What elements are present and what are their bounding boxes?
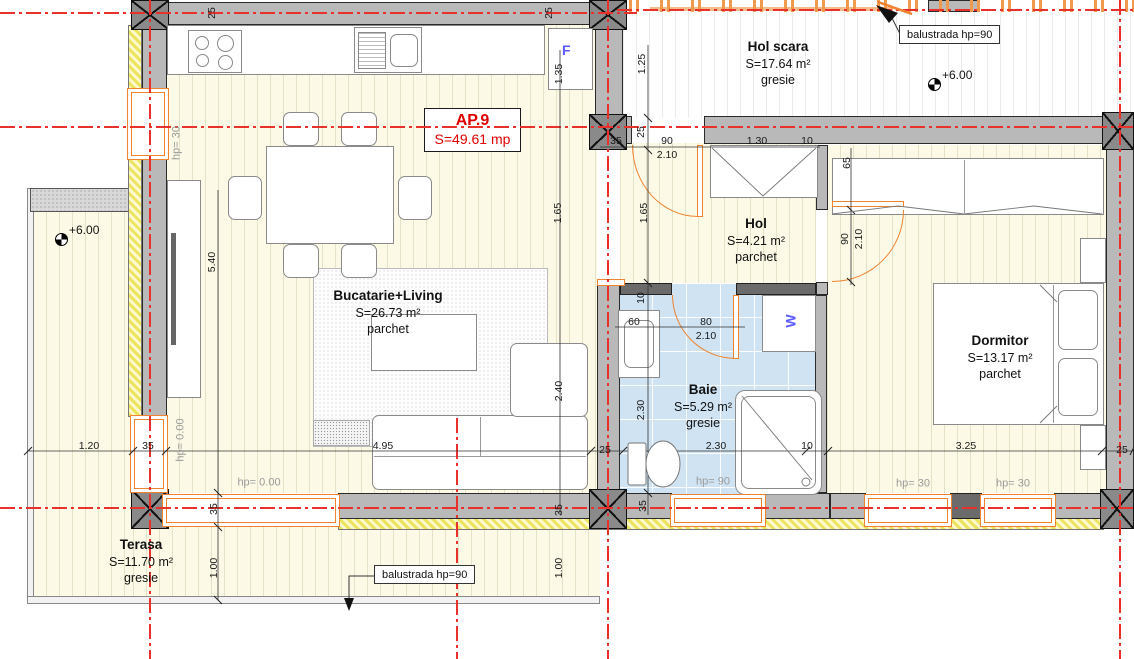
dimension-lines: [28, 45, 1134, 600]
shower-diagonal: [742, 396, 812, 480]
room-label-bucatarie-living: Bucatarie+Living S=26.73 m² parchet: [333, 287, 442, 337]
shower-drain: [802, 478, 810, 486]
room-floor: gresie: [674, 415, 732, 431]
level-symbol: [55, 233, 68, 246]
room-label-baie: Baie S=5.29 m² gresie: [674, 381, 732, 431]
level-value: +6.00: [69, 223, 99, 237]
room-label-hol-scara: Hol scara S=17.64 m² gresie: [746, 38, 811, 88]
room-label-hol: Hol S=4.21 m² parchet: [727, 215, 785, 265]
callout-balustrade-bottom: balustrada hp=90: [374, 565, 475, 584]
fridge-letter: F: [562, 42, 571, 58]
room-floor: parchet: [727, 249, 785, 265]
room-name: Hol scara: [746, 38, 811, 56]
room-area: S=11.70 m²: [109, 554, 173, 570]
floor-plan-canvas: AP.9 S=49.61 mp Hol scara S=17.64 m² gre…: [0, 0, 1134, 659]
room-name: Hol: [727, 215, 785, 233]
room-area: S=13.17 m²: [968, 350, 1033, 366]
room-label-dormitor: Dormitor S=13.17 m² parchet: [968, 332, 1033, 382]
room-name: Bucatarie+Living: [333, 287, 442, 305]
level-symbol: [928, 78, 941, 91]
room-floor: parchet: [333, 321, 442, 337]
callout-balustrade-top: balustrada hp=90: [899, 25, 1000, 44]
room-area: S=4.21 m²: [727, 233, 785, 249]
toilet: [628, 441, 680, 487]
furniture-details: [712, 148, 1102, 486]
room-area: S=5.29 m²: [674, 399, 732, 415]
room-label-terasa: Terasa S=11.70 m² gresie: [109, 536, 173, 586]
room-name: Terasa: [109, 536, 173, 554]
level-value: +6.00: [942, 68, 972, 82]
room-floor: parchet: [968, 366, 1033, 382]
room-area: S=26.73 m²: [333, 305, 442, 321]
room-floor: gresie: [746, 72, 811, 88]
wardrobe-door-marks: [832, 206, 1102, 214]
room-area: S=17.64 m²: [746, 56, 811, 72]
bed-fold-marks: [1040, 285, 1057, 423]
closet-diagonals: [712, 148, 816, 196]
washer-letter: W: [783, 314, 799, 327]
room-floor: gresie: [109, 570, 173, 586]
room-name: Baie: [674, 381, 732, 399]
leader-arrow-bottom: [344, 598, 354, 611]
room-name: Dormitor: [968, 332, 1033, 350]
